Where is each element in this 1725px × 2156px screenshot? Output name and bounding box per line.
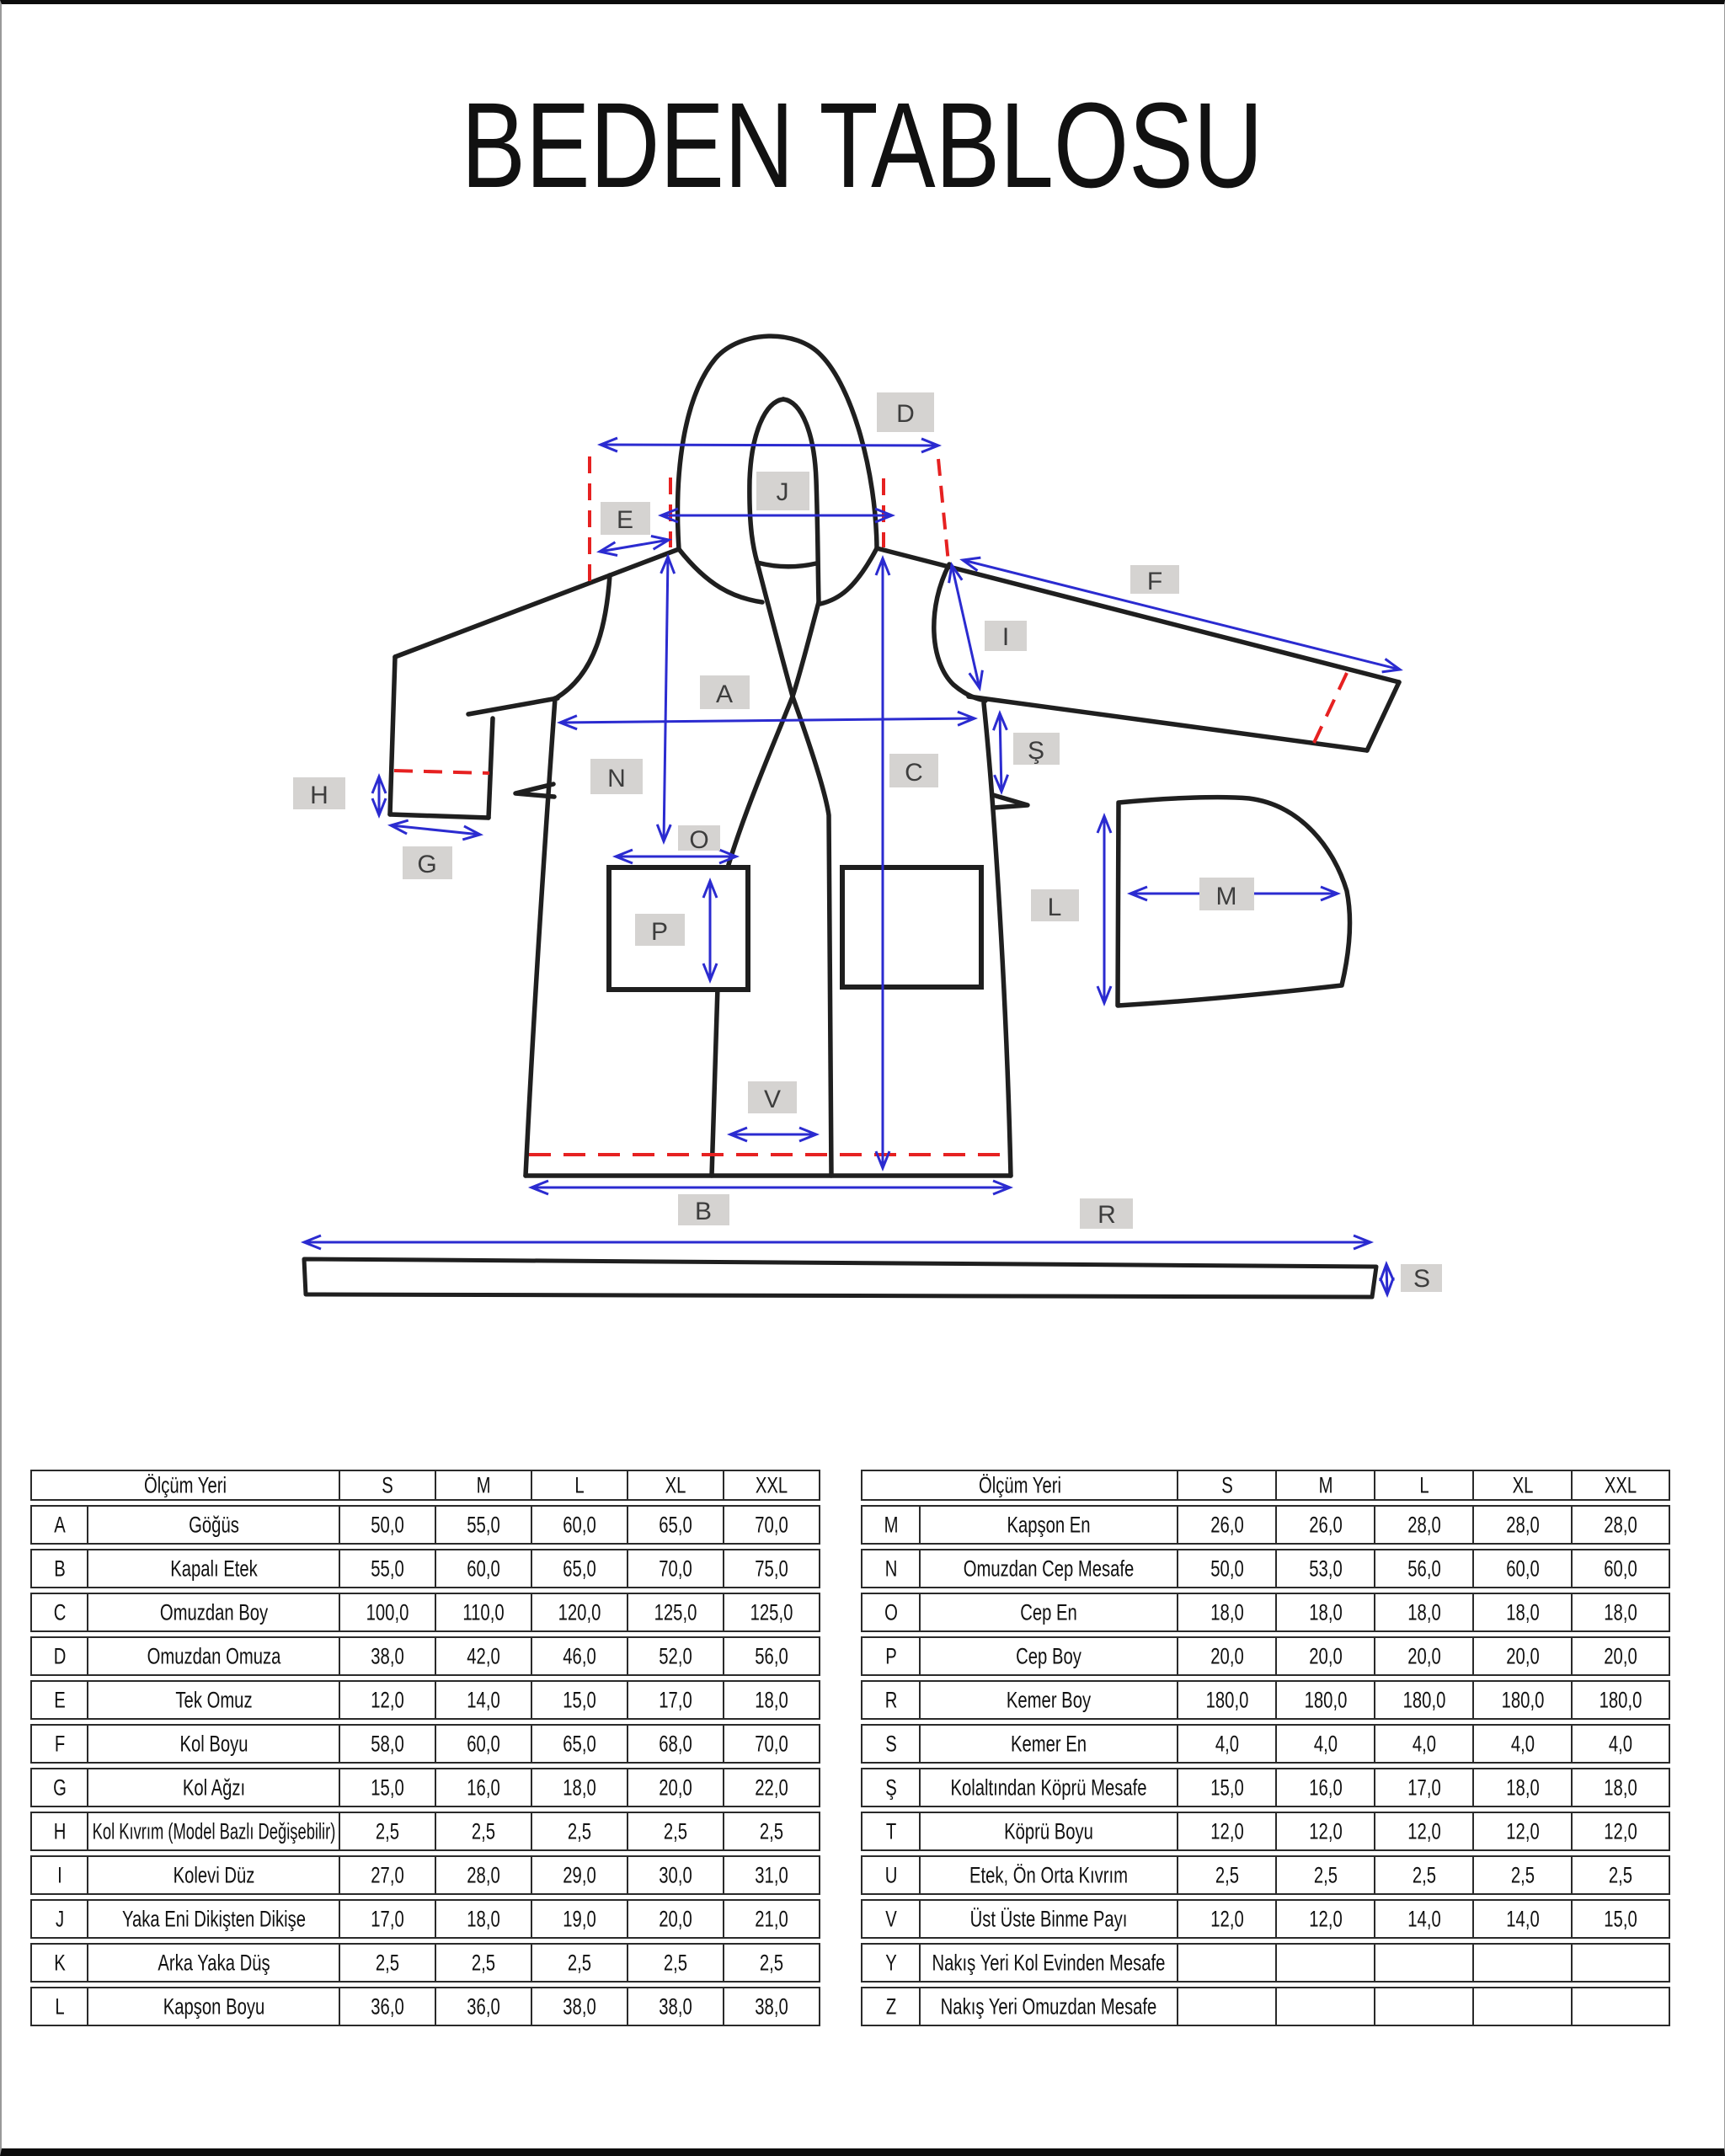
svg-text:D: D <box>896 400 915 428</box>
svg-text:B: B <box>695 1198 712 1225</box>
svg-text:N: N <box>607 765 626 792</box>
svg-text:Ş: Ş <box>1028 737 1044 765</box>
svg-text:R: R <box>1097 1201 1116 1229</box>
svg-text:S: S <box>1413 1265 1430 1293</box>
svg-text:L: L <box>1048 894 1062 921</box>
svg-text:I: I <box>1002 623 1009 651</box>
svg-text:O: O <box>689 826 708 854</box>
svg-text:A: A <box>716 680 733 708</box>
svg-text:H: H <box>310 782 328 809</box>
svg-text:F: F <box>1147 568 1162 595</box>
svg-text:M: M <box>1216 883 1237 910</box>
svg-text:V: V <box>764 1086 781 1113</box>
svg-text:C: C <box>905 759 923 787</box>
svg-text:P: P <box>651 918 668 946</box>
svg-text:J: J <box>777 478 789 506</box>
svg-text:E: E <box>617 506 633 534</box>
svg-text:G: G <box>417 851 436 878</box>
